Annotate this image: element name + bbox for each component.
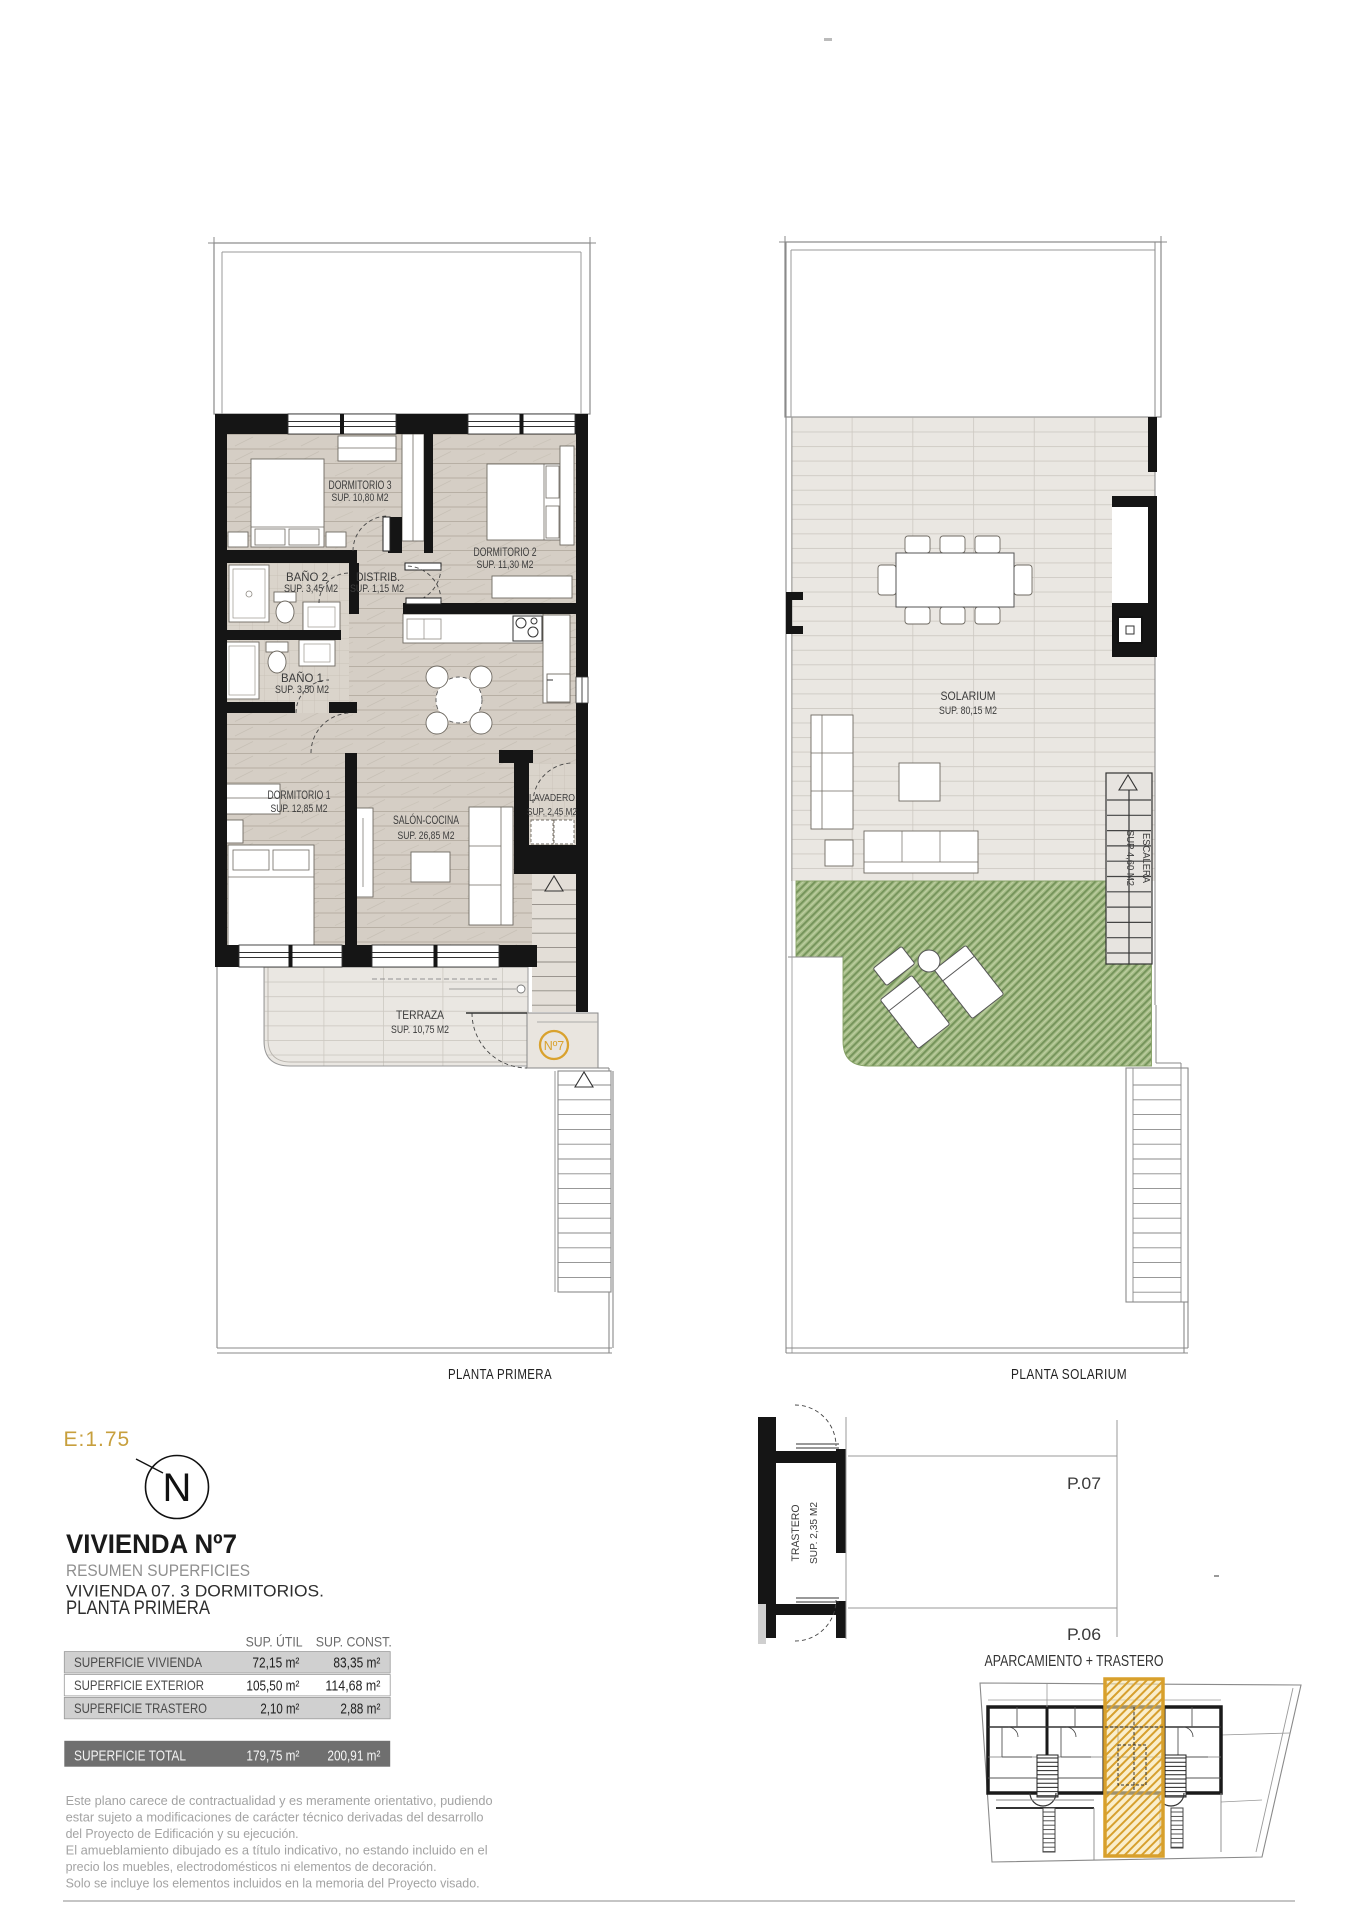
svg-text:SUP. ÚTIL: SUP. ÚTIL: [246, 1634, 303, 1650]
svg-text:SUP. 2,35 M2: SUP. 2,35 M2: [808, 1502, 820, 1564]
svg-text:SUP 4,60 M2: SUP 4,60 M2: [1124, 830, 1135, 886]
svg-text:P.06: P.06: [1067, 1625, 1101, 1644]
svg-text:SOLARIUM: SOLARIUM: [941, 689, 996, 703]
svg-text:PLANTA SOLARIUM: PLANTA SOLARIUM: [1011, 1367, 1127, 1383]
svg-text:DORMITORIO 3: DORMITORIO 3: [329, 478, 392, 492]
svg-text:114,68 m²: 114,68 m²: [325, 1679, 380, 1695]
svg-text:PLANTA PRIMERA: PLANTA PRIMERA: [448, 1367, 552, 1383]
svg-text:ESCALERA: ESCALERA: [1140, 833, 1152, 883]
svg-text:Nº7: Nº7: [544, 1039, 565, 1053]
svg-text:SUPERFICIE TOTAL: SUPERFICIE TOTAL: [74, 1749, 186, 1765]
svg-text:Este plano carece de contractu: Este plano carece de contractualidad y e…: [66, 1793, 493, 1808]
svg-text:TRASTERO: TRASTERO: [790, 1504, 802, 1561]
svg-text:SUPERFICIE TRASTERO: SUPERFICIE TRASTERO: [74, 1700, 207, 1716]
svg-text:SUPERFICIE EXTERIOR: SUPERFICIE EXTERIOR: [74, 1677, 204, 1693]
svg-text:del Proyecto de Edificación y: del Proyecto de Edificación y su ejecuci…: [66, 1826, 299, 1841]
svg-text:Solo se incluye los elementos: Solo se incluye los elementos incluidos …: [66, 1876, 480, 1891]
svg-text:VIVIENDA Nº7: VIVIENDA Nº7: [66, 1529, 237, 1559]
svg-text:DORMITORIO 1: DORMITORIO 1: [268, 788, 331, 802]
svg-text:SUPERFICIE VIVIENDA: SUPERFICIE VIVIENDA: [74, 1654, 203, 1670]
svg-text:SUP. 11,30 M2: SUP. 11,30 M2: [477, 559, 534, 571]
svg-text:LAVADERO: LAVADERO: [529, 792, 575, 804]
svg-text:SUP. 26,85 M2: SUP. 26,85 M2: [398, 830, 455, 842]
svg-text:83,35 m²: 83,35 m²: [333, 1656, 380, 1672]
svg-text:P.07: P.07: [1067, 1474, 1101, 1493]
svg-text:N: N: [163, 1466, 192, 1510]
svg-text:estar sujeto a modificaciones: estar sujeto a modificaciones de carácte…: [66, 1810, 484, 1825]
svg-text:SUP. 10,75 M2: SUP. 10,75 M2: [391, 1024, 449, 1036]
svg-text:PLANTA PRIMERA: PLANTA PRIMERA: [66, 1598, 210, 1619]
svg-text:SUP. 3,45 M2: SUP. 3,45 M2: [284, 583, 338, 595]
svg-text:2,10 m²: 2,10 m²: [260, 1702, 299, 1718]
svg-text:SUP. 12,85 M2: SUP. 12,85 M2: [271, 803, 328, 815]
svg-text:El amueblamiento dibujado es a: El amueblamiento dibujado es a título in…: [66, 1843, 488, 1858]
svg-text:200,91 m²: 200,91 m²: [327, 1749, 380, 1765]
svg-text:TERRAZA: TERRAZA: [396, 1008, 444, 1022]
svg-text:105,50 m²: 105,50 m²: [246, 1679, 299, 1695]
svg-text:SALÓN-COCINA: SALÓN-COCINA: [393, 812, 459, 827]
svg-text:RESUMEN SUPERFICIES: RESUMEN SUPERFICIES: [66, 1561, 250, 1580]
svg-text:SUP. 10,80 M2: SUP. 10,80 M2: [332, 492, 389, 504]
svg-text:APARCAMIENTO + TRASTERO: APARCAMIENTO + TRASTERO: [985, 1653, 1164, 1670]
svg-text:precio los muebles, electrodom: precio los muebles, electrodomésticos ni…: [66, 1859, 437, 1874]
svg-text:SUP. 80,15 M2: SUP. 80,15 M2: [939, 705, 997, 717]
svg-text:2,88 m²: 2,88 m²: [340, 1702, 380, 1718]
svg-text:SUP. 2,45 M2: SUP. 2,45 M2: [527, 807, 577, 818]
svg-text:BAÑO 2: BAÑO 2: [286, 570, 328, 584]
svg-text:E:1.75: E:1.75: [64, 1428, 131, 1451]
svg-text:BAÑO 1: BAÑO 1: [281, 671, 323, 685]
svg-text:SUP. CONST.: SUP. CONST.: [316, 1634, 392, 1650]
svg-text:DISTRIB.: DISTRIB.: [356, 570, 400, 584]
svg-text:SUP. 1,15 M2: SUP. 1,15 M2: [350, 583, 404, 595]
svg-text:SUP. 3,50 M2: SUP. 3,50 M2: [275, 684, 329, 696]
svg-text:DORMITORIO 2: DORMITORIO 2: [474, 545, 537, 559]
svg-text:179,75 m²: 179,75 m²: [246, 1749, 299, 1765]
svg-text:72,15 m²: 72,15 m²: [252, 1656, 299, 1672]
